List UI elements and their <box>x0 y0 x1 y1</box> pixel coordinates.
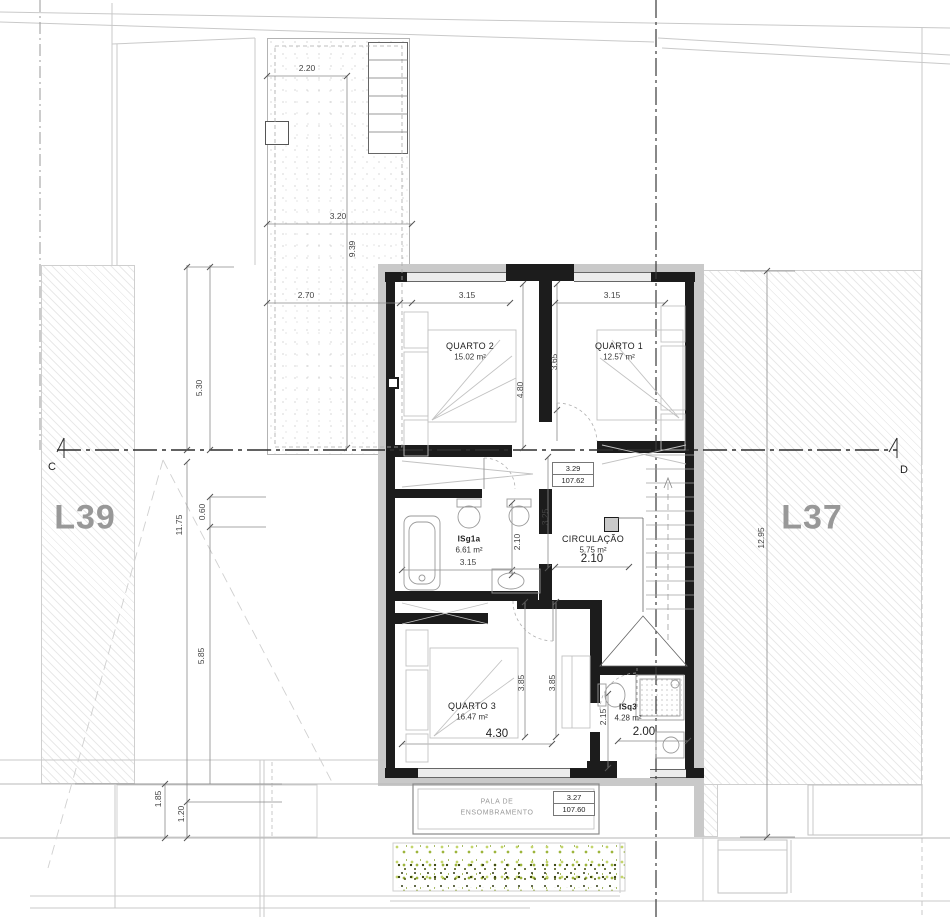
dim-left-060: 0.60 <box>197 504 207 521</box>
property-lines <box>0 3 950 917</box>
dim-quarto3-width: 4.30 <box>486 728 508 740</box>
level-marker-upper: 3.29 107.62 <box>552 462 594 487</box>
level-upper-relative: 3.29 <box>553 463 593 474</box>
dim-isg-height: 2.10 <box>512 534 522 551</box>
dim-left-1175: 11.75 <box>174 515 184 536</box>
level-lower-relative: 3.27 <box>554 792 594 803</box>
dim-quarto1-height: 3.65 <box>549 354 559 371</box>
dim-quarto3-385a: 3.85 <box>516 675 526 692</box>
level-marker-lower: 3.27 107.60 <box>553 791 595 816</box>
courtyard-lines <box>275 46 408 447</box>
lot-label-left: L39 <box>54 499 116 538</box>
section-line-cd <box>57 438 897 458</box>
floor-plan-drawing: L39 L37 C D QUARTO 2 15.02 m² QUARTO 1 1… <box>0 0 950 917</box>
linework-overlay <box>0 0 950 917</box>
furniture <box>402 306 686 762</box>
section-marker-d: D <box>900 464 908 476</box>
dim-quarto1-width: 3.15 <box>604 290 621 300</box>
door-swings <box>484 403 637 710</box>
room-label-quarto1: QUARTO 1 <box>595 341 643 351</box>
room-area-quarto1: 12.57 m² <box>603 353 635 362</box>
canopy-label-line1: PALA DE <box>481 799 514 806</box>
dim-left-585: 5.85 <box>196 648 206 665</box>
dim-courtyard-270: 2.70 <box>298 290 315 300</box>
dim-circ-width: 2.10 <box>581 553 603 565</box>
dimension-lines <box>75 76 795 838</box>
section-marker-c: C <box>48 461 56 473</box>
dim-left-530: 5.30 <box>194 380 204 397</box>
dim-isg-width: 3.15 <box>460 557 477 567</box>
room-area-quarto3: 16.47 m² <box>456 713 488 722</box>
room-area-isg1a: 6.61 m² <box>455 546 482 555</box>
sanitary-fixtures <box>404 499 684 758</box>
dim-isq-width: 2.00 <box>633 726 655 738</box>
room-label-circulacao: CIRCULAÇÃO <box>562 534 624 544</box>
dim-left-120: 1.20 <box>176 806 186 823</box>
lot-label-right: L37 <box>781 499 843 538</box>
dim-courtyard-320: 3.20 <box>330 211 347 221</box>
dim-quarto2-width: 3.15 <box>459 290 476 300</box>
dim-courtyard-220: 2.20 <box>299 63 316 73</box>
canopy-label-line2: ENSOMBRAMENTO <box>460 810 533 817</box>
room-label-isg1a: ISg1a <box>458 535 481 544</box>
level-upper-absolute: 107.62 <box>553 474 593 486</box>
room-area-isq3: 4.28 m² <box>614 714 641 723</box>
staircase <box>600 455 694 666</box>
dim-courtyard-939: 9.39 <box>347 241 357 258</box>
dimension-ticks <box>162 73 770 841</box>
room-label-quarto3: QUARTO 3 <box>448 701 496 711</box>
dim-hall-325: 3.25 <box>540 509 550 526</box>
dim-lot-right-1295: 12.95 <box>756 527 766 548</box>
dim-isq-height: 2.15 <box>598 709 608 726</box>
room-label-isq3: ISq3 <box>619 703 637 712</box>
dim-quarto3-385b: 3.85 <box>547 675 557 692</box>
dim-quarto2-height: 4.80 <box>515 382 525 399</box>
level-lower-absolute: 107.60 <box>554 803 594 815</box>
room-area-quarto2: 15.02 m² <box>454 353 486 362</box>
room-label-quarto2: QUARTO 2 <box>446 341 494 351</box>
dim-left-185: 1.85 <box>153 791 163 808</box>
